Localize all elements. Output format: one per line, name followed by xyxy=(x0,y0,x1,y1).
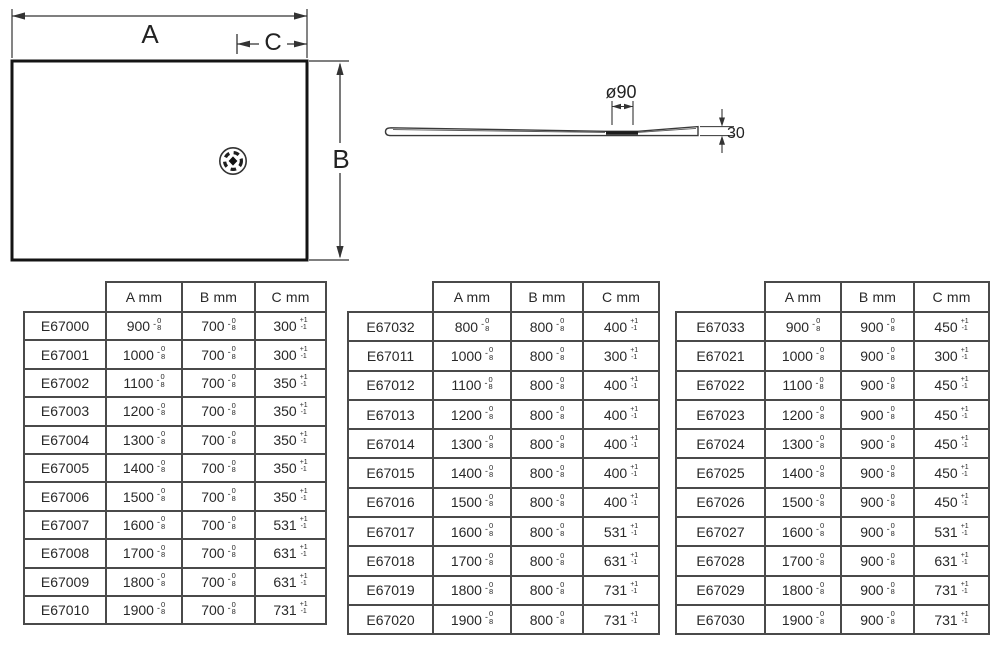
tolerance-ab: -08 xyxy=(556,376,564,391)
table-row: E670091800-08700-08631+1-1 xyxy=(24,568,326,596)
dim-a-cell: 1300-08 xyxy=(106,426,182,454)
arrowhead-right-icon xyxy=(294,12,307,19)
dim-value: 400 xyxy=(604,319,627,335)
tolerance-c: +1-1 xyxy=(961,376,969,390)
dim-value: 300 xyxy=(934,348,957,364)
dim-a-cell: 900-08 xyxy=(106,312,182,340)
dim-value: 1300 xyxy=(123,432,154,448)
dim-c-cell: 631+1-1 xyxy=(583,546,659,575)
product-code-cell: E67024 xyxy=(676,429,765,458)
dim-value: 800 xyxy=(530,553,553,569)
product-code-cell: E67000 xyxy=(24,312,106,340)
dim-b-cell: 800-08 xyxy=(511,371,583,400)
tolerance-c: +1-1 xyxy=(300,544,308,558)
dim-b-cell: 900-08 xyxy=(841,312,914,341)
tolerance-c: +1-1 xyxy=(300,402,308,416)
dim-value: 1600 xyxy=(451,524,482,540)
column-header: B mm xyxy=(511,282,583,312)
table-row: E670221100-08900-08450+1-1 xyxy=(676,371,989,400)
tolerance-ab: -08 xyxy=(816,552,824,567)
dim-value: 1500 xyxy=(123,489,154,505)
tolerance-ab: -08 xyxy=(887,522,895,537)
tolerance-ab: -08 xyxy=(887,610,895,625)
dim-value: 1700 xyxy=(123,545,154,561)
dim-value: 900 xyxy=(786,319,809,335)
dim-a-cell: 1200-08 xyxy=(106,397,182,425)
thickness-label: 30 xyxy=(727,125,745,142)
dim-a-cell: 1600-08 xyxy=(106,511,182,539)
arrowhead-left-icon xyxy=(612,104,621,109)
dim-value: 1400 xyxy=(782,465,813,481)
dim-a-cell: 1500-08 xyxy=(106,482,182,510)
table-row: E670081700-08700-08631+1-1 xyxy=(24,539,326,567)
dim-c-cell: 450+1-1 xyxy=(914,429,989,458)
dim-value: 450 xyxy=(934,494,957,510)
dim-value: 1800 xyxy=(451,582,482,598)
product-code-cell: E67008 xyxy=(24,539,106,567)
dim-value: 800 xyxy=(530,524,553,540)
tolerance-ab: -08 xyxy=(157,572,165,587)
dim-c-cell: 350+1-1 xyxy=(255,482,326,510)
dim-value: 700 xyxy=(201,517,224,533)
dim-b-cell: 900-08 xyxy=(841,429,914,458)
dim-c-cell: 350+1-1 xyxy=(255,454,326,482)
dim-value: 900 xyxy=(860,553,883,569)
dim-b-cell: 900-08 xyxy=(841,341,914,370)
dim-b-cell: 800-08 xyxy=(511,488,583,517)
drain-diameter-label: ø90 xyxy=(605,82,636,102)
tolerance-ab: -08 xyxy=(816,522,824,537)
tolerance-c: +1-1 xyxy=(961,318,969,332)
dim-b-cell: 700-08 xyxy=(182,369,255,397)
header-spacer xyxy=(24,282,106,312)
dim-value: 1700 xyxy=(451,553,482,569)
dim-c-cell: 300+1-1 xyxy=(255,340,326,368)
tolerance-c: +1-1 xyxy=(630,552,638,566)
tolerance-ab: -08 xyxy=(556,493,564,508)
table-row: E670171600-08800-08531+1-1 xyxy=(348,517,659,546)
dim-c-cell: 400+1-1 xyxy=(583,400,659,429)
header-spacer xyxy=(348,282,433,312)
dim-b-cell: 700-08 xyxy=(182,454,255,482)
tolerance-c: +1-1 xyxy=(961,581,969,595)
table-row: E670161500-08800-08400+1-1 xyxy=(348,488,659,517)
dim-value: 350 xyxy=(273,432,296,448)
arrowhead-left-icon xyxy=(12,12,25,19)
dim-c-cell: 300+1-1 xyxy=(255,312,326,340)
tolerance-ab: -08 xyxy=(157,601,165,616)
dim-value: 631 xyxy=(273,574,296,590)
dim-b-cell: 900-08 xyxy=(841,517,914,546)
tolerance-c: +1-1 xyxy=(961,347,969,361)
dim-b-cell: 700-08 xyxy=(182,312,255,340)
dim-value: 1300 xyxy=(451,436,482,452)
dim-value: 400 xyxy=(604,465,627,481)
dim-b-cell: 900-08 xyxy=(841,371,914,400)
dim-a-cell: 900-08 xyxy=(765,312,841,341)
tolerance-ab: -08 xyxy=(157,515,165,530)
dim-a-cell: 1100-08 xyxy=(106,369,182,397)
dim-value: 700 xyxy=(201,432,224,448)
dim-value: 1300 xyxy=(782,436,813,452)
dim-a-cell: 1900-08 xyxy=(433,605,511,634)
tolerance-c: +1-1 xyxy=(630,376,638,390)
table-row: E670181700-08800-08631+1-1 xyxy=(348,546,659,575)
tolerance-ab: -08 xyxy=(228,459,236,474)
dim-value: 350 xyxy=(273,489,296,505)
table-row: E670241300-08900-08450+1-1 xyxy=(676,429,989,458)
product-code-cell: E67014 xyxy=(348,429,433,458)
dim-b-cell: 800-08 xyxy=(511,341,583,370)
tolerance-ab: -08 xyxy=(556,434,564,449)
dim-value: 800 xyxy=(530,612,553,628)
tolerance-ab: -08 xyxy=(887,346,895,361)
dim-value: 1500 xyxy=(451,494,482,510)
tolerance-c: +1-1 xyxy=(300,346,308,360)
tolerance-c: +1-1 xyxy=(630,581,638,595)
dim-value: 1800 xyxy=(782,582,813,598)
dim-value: 900 xyxy=(860,524,883,540)
tolerance-c: +1-1 xyxy=(300,374,308,388)
dim-value: 1100 xyxy=(123,375,153,391)
tolerance-ab: -08 xyxy=(228,544,236,559)
column-header: B mm xyxy=(182,282,255,312)
table-row: E670141300-08800-08400+1-1 xyxy=(348,429,659,458)
dim-value: 1600 xyxy=(782,524,813,540)
arrowhead-down-icon xyxy=(336,246,343,259)
tolerance-ab: -08 xyxy=(816,346,824,361)
product-code-cell: E67021 xyxy=(676,341,765,370)
column-header: A mm xyxy=(765,282,841,312)
dim-a-cell: 1000-08 xyxy=(765,341,841,370)
tolerance-c: +1-1 xyxy=(961,464,969,478)
tolerance-c: +1-1 xyxy=(300,459,308,473)
dim-c-cell: 731+1-1 xyxy=(914,605,989,634)
dim-value: 631 xyxy=(604,553,627,569)
tolerance-ab: -08 xyxy=(556,346,564,361)
dim-value: 700 xyxy=(201,574,224,590)
product-code-cell: E67020 xyxy=(348,605,433,634)
tolerance-ab: -08 xyxy=(485,346,493,361)
dim-value: 700 xyxy=(201,347,224,363)
dim-c-cell: 531+1-1 xyxy=(914,517,989,546)
product-code-cell: E67010 xyxy=(24,596,106,624)
product-code-cell: E67030 xyxy=(676,605,765,634)
arrowhead-right-icon xyxy=(294,41,307,48)
dim-value: 1200 xyxy=(451,407,482,423)
dim-b-cell: 800-08 xyxy=(511,546,583,575)
product-code-cell: E67028 xyxy=(676,546,765,575)
tolerance-ab: -08 xyxy=(157,487,165,502)
dim-a-cell: 800-08 xyxy=(433,312,511,341)
tolerance-c: +1-1 xyxy=(630,318,638,332)
dim-value: 800 xyxy=(530,319,553,335)
dim-value: 1800 xyxy=(123,574,154,590)
dim-c-cell: 631+1-1 xyxy=(255,539,326,567)
product-code-cell: E67025 xyxy=(676,458,765,487)
dim-b-cell: 800-08 xyxy=(511,458,583,487)
dim-value: 531 xyxy=(934,524,957,540)
dim-c-cell: 450+1-1 xyxy=(914,312,989,341)
tolerance-c: +1-1 xyxy=(961,523,969,537)
dim-label-a: A xyxy=(141,19,159,49)
dim-a-cell: 1800-08 xyxy=(433,576,511,605)
spec-table-900: A mmB mmC mmE67033900-08900-08450+1-1E67… xyxy=(675,281,990,635)
product-code-cell: E67023 xyxy=(676,400,765,429)
dim-value: 300 xyxy=(273,318,296,334)
dim-value: 450 xyxy=(934,436,957,452)
table-row: E67033900-08900-08450+1-1 xyxy=(676,312,989,341)
table-row: E670041300-08700-08350+1-1 xyxy=(24,426,326,454)
table-row: E670261500-08900-08450+1-1 xyxy=(676,488,989,517)
dim-a-cell: 1700-08 xyxy=(433,546,511,575)
dim-b-cell: 800-08 xyxy=(511,605,583,634)
table-row: E670131200-08800-08400+1-1 xyxy=(348,400,659,429)
dim-a-cell: 1900-08 xyxy=(765,605,841,634)
dim-b-cell: 700-08 xyxy=(182,426,255,454)
dim-b-cell: 700-08 xyxy=(182,596,255,624)
dim-c-cell: 631+1-1 xyxy=(914,546,989,575)
tolerance-c: +1-1 xyxy=(630,435,638,449)
column-header: A mm xyxy=(433,282,511,312)
dim-value: 900 xyxy=(860,319,883,335)
spec-table-700: A mmB mmC mmE67000900-08700-08300+1-1E67… xyxy=(23,281,327,625)
tolerance-ab: -08 xyxy=(157,345,165,360)
plan-view: A C B xyxy=(0,0,360,270)
product-code-cell: E67004 xyxy=(24,426,106,454)
tolerance-ab: -08 xyxy=(156,373,164,388)
dim-value: 1500 xyxy=(782,494,813,510)
dim-a-cell: 1700-08 xyxy=(765,546,841,575)
dim-value: 400 xyxy=(604,407,627,423)
product-code-cell: E67012 xyxy=(348,371,433,400)
table-row: E670191800-08800-08731+1-1 xyxy=(348,576,659,605)
tolerance-c: +1-1 xyxy=(630,523,638,537)
tolerance-ab: -08 xyxy=(228,572,236,587)
product-code-cell: E67022 xyxy=(676,371,765,400)
dim-value: 1100 xyxy=(782,377,812,393)
tolerance-ab: -08 xyxy=(228,317,236,332)
tolerance-ab: -08 xyxy=(481,317,489,332)
dim-a-cell: 1900-08 xyxy=(106,596,182,624)
tolerance-c: +1-1 xyxy=(300,431,308,445)
dim-c-cell: 450+1-1 xyxy=(914,371,989,400)
table-row: E670051400-08700-08350+1-1 xyxy=(24,454,326,482)
dim-value: 1900 xyxy=(451,612,482,628)
product-code-cell: E67006 xyxy=(24,482,106,510)
dim-value: 900 xyxy=(860,494,883,510)
dim-b-cell: 900-08 xyxy=(841,488,914,517)
tolerance-ab: -08 xyxy=(485,552,493,567)
dim-c-cell: 531+1-1 xyxy=(255,511,326,539)
dim-c-cell: 531+1-1 xyxy=(583,517,659,546)
dim-value: 1200 xyxy=(782,407,813,423)
dim-c-cell: 731+1-1 xyxy=(583,576,659,605)
tolerance-ab: -08 xyxy=(485,493,493,508)
tolerance-ab: -08 xyxy=(816,581,824,596)
dim-a-cell: 1300-08 xyxy=(765,429,841,458)
product-code-cell: E67019 xyxy=(348,576,433,605)
tolerance-ab: -08 xyxy=(887,434,895,449)
tolerance-ab: -08 xyxy=(816,610,824,625)
column-header: C mm xyxy=(583,282,659,312)
dim-a-cell: 1300-08 xyxy=(433,429,511,458)
dim-c-cell: 400+1-1 xyxy=(583,429,659,458)
dim-b-cell: 900-08 xyxy=(841,458,914,487)
dim-value: 731 xyxy=(934,612,957,628)
tolerance-ab: -08 xyxy=(485,522,493,537)
dim-b-cell: 800-08 xyxy=(511,576,583,605)
dim-value: 900 xyxy=(860,407,883,423)
table-row: E670031200-08700-08350+1-1 xyxy=(24,397,326,425)
dim-value: 900 xyxy=(860,582,883,598)
dim-label-c: C xyxy=(264,29,281,56)
dim-c-cell: 400+1-1 xyxy=(583,371,659,400)
dim-value: 400 xyxy=(604,377,627,393)
arrowhead-right-icon xyxy=(624,104,633,109)
tolerance-ab: -08 xyxy=(228,345,236,360)
dim-value: 450 xyxy=(934,465,957,481)
dim-a-cell: 1500-08 xyxy=(433,488,511,517)
column-header: B mm xyxy=(841,282,914,312)
tolerance-ab: -08 xyxy=(485,405,493,420)
dim-value: 1900 xyxy=(782,612,813,628)
dim-value: 900 xyxy=(127,318,150,334)
dim-value: 1600 xyxy=(123,517,154,533)
tolerance-ab: -08 xyxy=(228,487,236,502)
dim-b-cell: 900-08 xyxy=(841,605,914,634)
tolerance-ab: -08 xyxy=(228,515,236,530)
table-row: E670211000-08900-08300+1-1 xyxy=(676,341,989,370)
dim-b-cell: 700-08 xyxy=(182,568,255,596)
tolerance-c: +1-1 xyxy=(300,573,308,587)
dim-c-cell: 400+1-1 xyxy=(583,458,659,487)
dim-value: 350 xyxy=(273,375,296,391)
tolerance-ab: -08 xyxy=(157,459,165,474)
table-row: E67000900-08700-08300+1-1 xyxy=(24,312,326,340)
dim-value: 700 xyxy=(201,545,224,561)
dim-a-cell: 1400-08 xyxy=(106,454,182,482)
dim-c-cell: 450+1-1 xyxy=(914,458,989,487)
shower-tray-outline xyxy=(12,61,307,260)
tolerance-ab: -08 xyxy=(485,464,493,479)
dim-value: 631 xyxy=(273,545,296,561)
dim-b-cell: 800-08 xyxy=(511,517,583,546)
column-header: C mm xyxy=(255,282,326,312)
dim-c-cell: 300+1-1 xyxy=(583,341,659,370)
table-row: E670201900-08800-08731+1-1 xyxy=(348,605,659,634)
dim-value: 450 xyxy=(934,377,957,393)
dim-label-b: B xyxy=(332,144,349,174)
tolerance-ab: -08 xyxy=(556,581,564,596)
dim-value: 300 xyxy=(273,347,296,363)
tolerance-ab: -08 xyxy=(887,376,895,391)
dim-b-cell: 900-08 xyxy=(841,576,914,605)
dim-b-cell: 800-08 xyxy=(511,312,583,341)
dim-b-cell: 900-08 xyxy=(841,546,914,575)
product-code-cell: E67007 xyxy=(24,511,106,539)
tolerance-ab: -08 xyxy=(228,402,236,417)
dim-a-cell: 1200-08 xyxy=(433,400,511,429)
tolerance-ab: -08 xyxy=(887,464,895,479)
tolerance-ab: -08 xyxy=(228,601,236,616)
tolerance-ab: -08 xyxy=(485,610,493,625)
dim-a-cell: 1400-08 xyxy=(765,458,841,487)
profile-view: ø90 30 xyxy=(380,55,760,165)
product-code-cell: E67002 xyxy=(24,369,106,397)
tolerance-ab: -08 xyxy=(485,434,493,449)
dim-c-cell: 300+1-1 xyxy=(914,341,989,370)
table-row: E670011000-08700-08300+1-1 xyxy=(24,340,326,368)
tolerance-ab: -08 xyxy=(484,376,492,391)
dim-value: 700 xyxy=(201,602,224,618)
tolerance-ab: -08 xyxy=(556,317,564,332)
dim-value: 900 xyxy=(860,612,883,628)
dim-c-cell: 350+1-1 xyxy=(255,397,326,425)
arrowhead-down-icon xyxy=(719,118,725,127)
dim-value: 700 xyxy=(201,489,224,505)
dim-value: 300 xyxy=(604,348,627,364)
product-code-cell: E67018 xyxy=(348,546,433,575)
column-header: C mm xyxy=(914,282,989,312)
dim-value: 350 xyxy=(273,460,296,476)
dim-value: 450 xyxy=(934,319,957,335)
dim-a-cell: 1400-08 xyxy=(433,458,511,487)
dim-value: 1100 xyxy=(451,377,481,393)
dim-c-cell: 350+1-1 xyxy=(255,426,326,454)
dim-value: 731 xyxy=(604,582,627,598)
tolerance-ab: -08 xyxy=(556,464,564,479)
dim-value: 800 xyxy=(530,465,553,481)
dim-b-cell: 700-08 xyxy=(182,482,255,510)
dim-a-cell: 1100-08 xyxy=(765,371,841,400)
tolerance-ab: -08 xyxy=(815,376,823,391)
dim-a-cell: 1800-08 xyxy=(106,568,182,596)
table-row: E670071600-08700-08531+1-1 xyxy=(24,511,326,539)
dim-value: 900 xyxy=(860,436,883,452)
dim-value: 800 xyxy=(530,407,553,423)
dim-value: 800 xyxy=(530,582,553,598)
dim-value: 1000 xyxy=(451,348,482,364)
dim-value: 531 xyxy=(273,517,296,533)
tolerance-ab: -08 xyxy=(887,317,895,332)
tolerance-ab: -08 xyxy=(887,493,895,508)
tolerance-c: +1-1 xyxy=(630,611,638,625)
tolerance-ab: -08 xyxy=(228,430,236,445)
table-row: E670231200-08900-08450+1-1 xyxy=(676,400,989,429)
table-row: E67032800-08800-08400+1-1 xyxy=(348,312,659,341)
table-row: E670061500-08700-08350+1-1 xyxy=(24,482,326,510)
dim-value: 800 xyxy=(530,377,553,393)
tolerance-ab: -08 xyxy=(887,405,895,420)
tolerance-ab: -08 xyxy=(153,317,161,332)
dim-value: 400 xyxy=(604,436,627,452)
table-row: E670301900-08900-08731+1-1 xyxy=(676,605,989,634)
product-code-cell: E67015 xyxy=(348,458,433,487)
tolerance-ab: -08 xyxy=(556,405,564,420)
dim-a-cell: 1700-08 xyxy=(106,539,182,567)
tolerance-c: +1-1 xyxy=(300,317,308,331)
dim-value: 450 xyxy=(934,407,957,423)
dim-value: 900 xyxy=(860,348,883,364)
dim-c-cell: 400+1-1 xyxy=(583,312,659,341)
product-code-cell: E67003 xyxy=(24,397,106,425)
dim-value: 1700 xyxy=(782,553,813,569)
dim-c-cell: 731+1-1 xyxy=(255,596,326,624)
dim-c-cell: 450+1-1 xyxy=(914,488,989,517)
dim-value: 400 xyxy=(604,494,627,510)
product-code-cell: E67033 xyxy=(676,312,765,341)
